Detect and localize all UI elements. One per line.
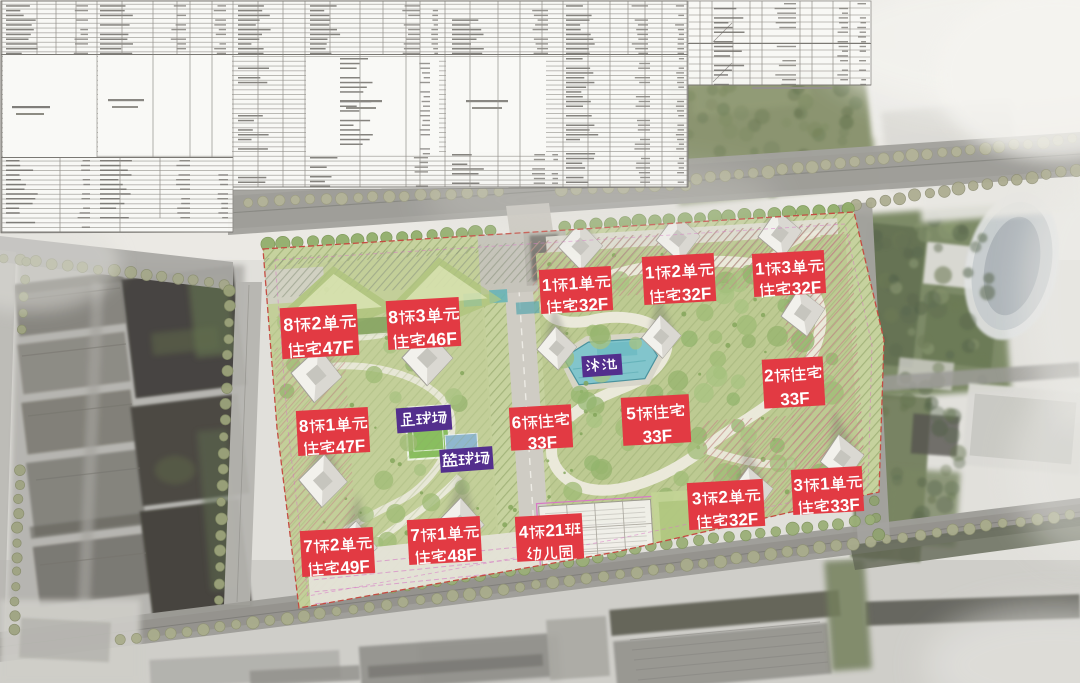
svg-text:3: 3 — [691, 489, 702, 508]
svg-text:2: 2 — [311, 313, 322, 334]
svg-text:4: 4 — [518, 522, 529, 542]
svg-text:32F: 32F — [791, 278, 821, 299]
svg-text:33F: 33F — [780, 389, 810, 410]
svg-text:47F: 47F — [322, 337, 354, 359]
svg-text:2: 2 — [329, 535, 340, 554]
svg-text:5: 5 — [626, 403, 637, 424]
svg-text:32F: 32F — [578, 294, 608, 315]
svg-text:21: 21 — [545, 520, 565, 540]
svg-text:33F: 33F — [642, 425, 673, 447]
svg-text:47F: 47F — [335, 436, 365, 457]
svg-text:6: 6 — [511, 413, 522, 432]
svg-text:1: 1 — [820, 474, 831, 493]
svg-text:8: 8 — [388, 307, 399, 328]
svg-text:49F: 49F — [340, 557, 370, 578]
svg-text:2: 2 — [671, 262, 682, 281]
svg-text:8: 8 — [298, 417, 309, 436]
svg-text:46F: 46F — [426, 328, 458, 350]
svg-text:7: 7 — [303, 537, 314, 556]
svg-text:1: 1 — [568, 274, 579, 293]
svg-text:1: 1 — [437, 524, 448, 543]
svg-text:2: 2 — [718, 487, 729, 506]
svg-text:8: 8 — [283, 315, 294, 336]
svg-text:3: 3 — [793, 476, 804, 495]
svg-text:7: 7 — [410, 526, 421, 545]
svg-text:1: 1 — [325, 415, 336, 434]
svg-text:32F: 32F — [681, 284, 711, 305]
svg-text:32F: 32F — [728, 509, 758, 530]
svg-text:48F: 48F — [447, 545, 477, 566]
svg-text:33F: 33F — [830, 495, 860, 516]
svg-text:1: 1 — [541, 275, 552, 294]
svg-text:3: 3 — [781, 258, 792, 277]
svg-text:3: 3 — [415, 305, 426, 326]
svg-text:33F: 33F — [527, 433, 557, 454]
svg-text:2: 2 — [764, 366, 775, 385]
svg-text:1: 1 — [644, 263, 655, 282]
svg-text:1: 1 — [754, 259, 765, 278]
